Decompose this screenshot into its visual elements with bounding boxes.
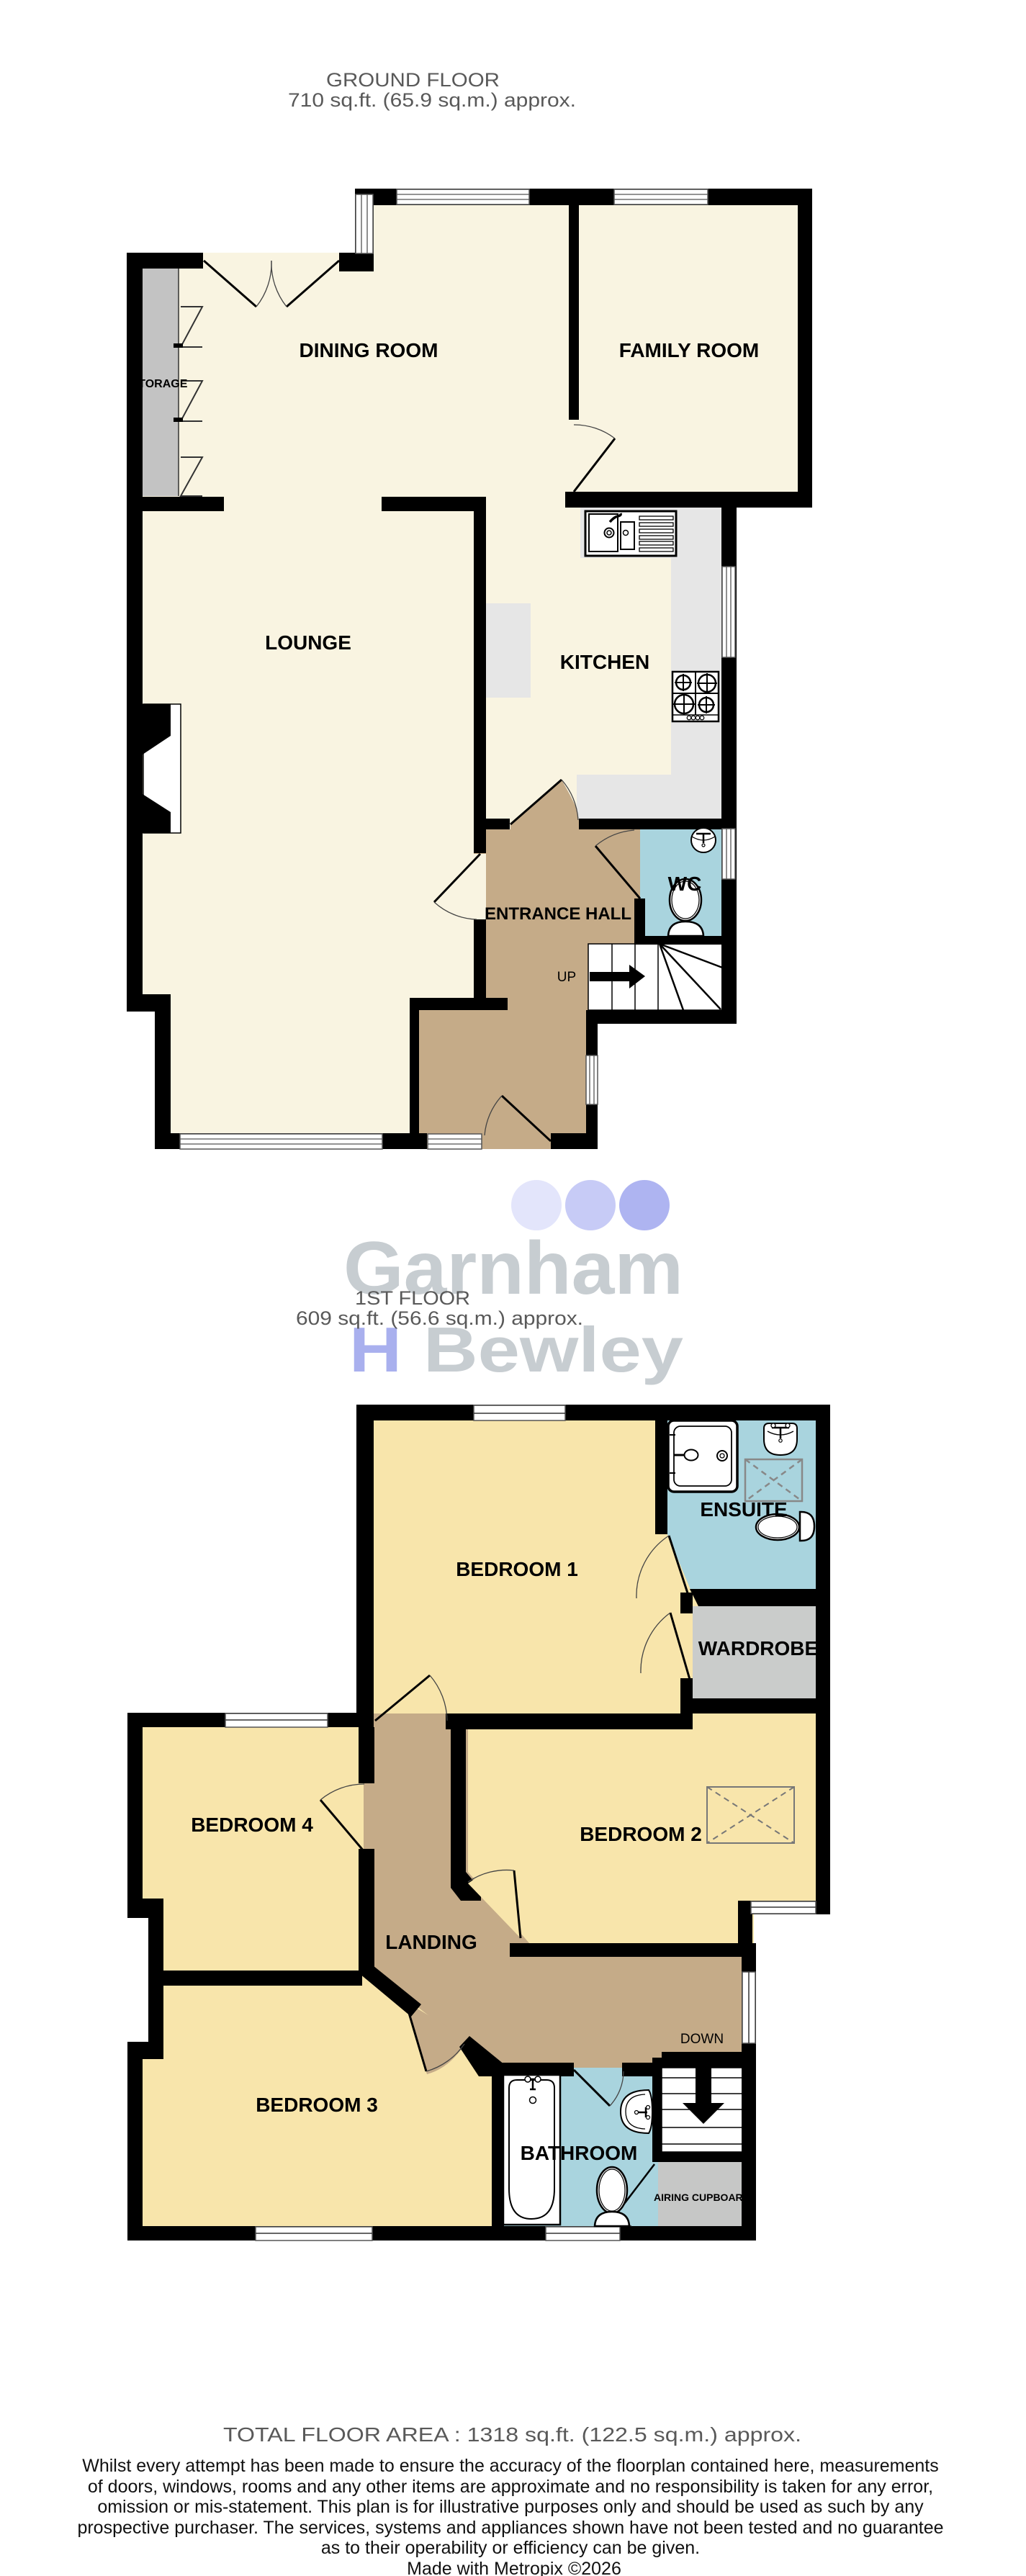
svg-text:710 sq.ft. (65.9 sq.m.) approx: 710 sq.ft. (65.9 sq.m.) approx.	[288, 89, 576, 111]
svg-text:BEDROOM 4: BEDROOM 4	[191, 1814, 313, 1836]
svg-text:DOWN: DOWN	[680, 2032, 724, 2047]
svg-text:609 sq.ft. (56.6 sq.m.) approx: 609 sq.ft. (56.6 sq.m.) approx.	[296, 1307, 583, 1329]
svg-text:BEDROOM 3: BEDROOM 3	[256, 2094, 378, 2116]
svg-text:of doors, windows, rooms and a: of doors, windows, rooms and any other i…	[88, 2477, 933, 2497]
svg-text:DINING ROOM: DINING ROOM	[300, 339, 438, 361]
svg-text:UP: UP	[557, 970, 576, 985]
svg-text:BEDROOM 2: BEDROOM 2	[580, 1823, 702, 1845]
svg-text:GROUND FLOOR: GROUND FLOOR	[326, 69, 500, 91]
svg-text:LANDING: LANDING	[385, 1931, 477, 1953]
svg-text:1ST FLOOR: 1ST FLOOR	[355, 1287, 470, 1309]
svg-text:ENSUITE: ENSUITE	[700, 1498, 787, 1521]
svg-text:Made with Metropix ©2026: Made with Metropix ©2026	[407, 2559, 621, 2576]
svg-text:KITCHEN: KITCHEN	[560, 651, 649, 673]
svg-text:omission or mis-statement. Thi: omission or mis-statement. This plan is …	[97, 2497, 924, 2517]
svg-text:WARDROBE: WARDROBE	[698, 1637, 818, 1659]
svg-text:LOUNGE: LOUNGE	[265, 631, 351, 654]
svg-text:BATHROOM: BATHROOM	[521, 2142, 638, 2164]
svg-text:AIRING CUPBOARD: AIRING CUPBOARD	[654, 2192, 750, 2203]
svg-text:ENTRANCE HALL: ENTRANCE HALL	[485, 904, 631, 924]
svg-text:as to their operability or eff: as to their operability or efficiency ca…	[321, 2538, 700, 2558]
svg-text:WC: WC	[668, 873, 702, 895]
svg-text:STORAGE: STORAGE	[131, 378, 188, 390]
svg-text:BEDROOM 1: BEDROOM 1	[456, 1558, 578, 1580]
svg-text:Whilst every attempt has been: Whilst every attempt has been made to en…	[82, 2456, 939, 2476]
svg-text:TOTAL FLOOR AREA : 1318 sq.ft.: TOTAL FLOOR AREA : 1318 sq.ft. (122.5 sq…	[223, 2423, 801, 2446]
svg-text:FAMILY ROOM: FAMILY ROOM	[619, 339, 759, 361]
svg-text:prospective purchaser. The ser: prospective purchaser. The services, sys…	[77, 2518, 943, 2538]
